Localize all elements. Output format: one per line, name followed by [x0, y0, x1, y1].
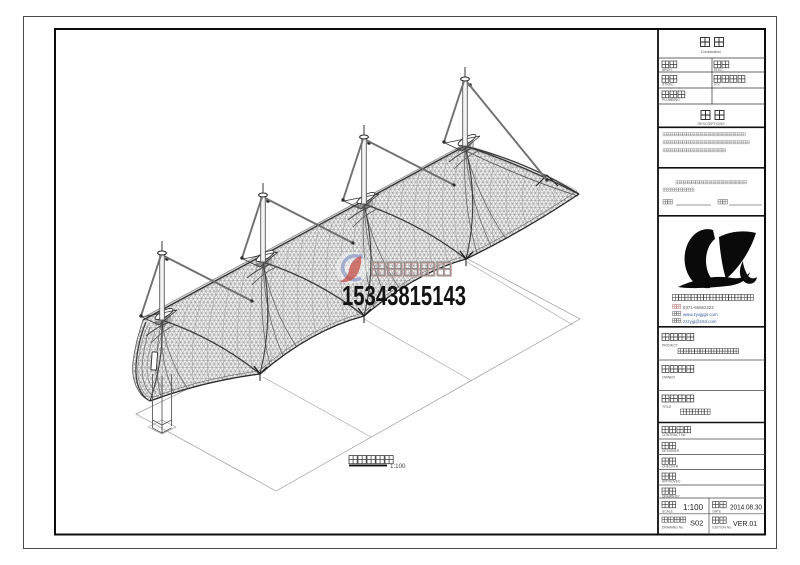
svg-text:PLUMBING: PLUMBING	[662, 98, 680, 102]
svg-text:CHECKER: CHECKER	[662, 465, 679, 469]
svg-text:ARCH.: ARCH.	[662, 68, 673, 72]
svg-text:0371-66562222: 0371-66562222	[683, 305, 714, 310]
svg-text:1:100: 1:100	[683, 503, 704, 512]
svg-text:1:100: 1:100	[390, 463, 406, 470]
svg-text:2014.08.30: 2014.08.30	[730, 505, 762, 512]
svg-text:S02: S02	[690, 519, 703, 528]
svg-text:TITLE: TITLE	[662, 405, 672, 409]
svg-text:SCALE: SCALE	[662, 510, 674, 514]
svg-text:STRUC.: STRUC.	[662, 83, 675, 87]
svg-text:CONTRACT No.: CONTRACT No.	[662, 433, 686, 437]
svg-text:zzzyjg@163.com: zzzyjg@163.com	[683, 319, 717, 324]
svg-text:www.zyxjggs.com: www.zyxjggs.com	[683, 312, 718, 317]
svg-text:H.V.: H.V.	[714, 83, 720, 87]
svg-text:DATE: DATE	[713, 510, 722, 514]
svg-text:15343815143: 15343815143	[342, 280, 466, 311]
svg-text:VER.01: VER.01	[733, 521, 757, 528]
svg-text:Combination: Combination	[701, 50, 721, 54]
svg-text:PROJECT: PROJECT	[662, 344, 678, 348]
svg-text:ELEC.: ELEC.	[714, 68, 724, 72]
svg-text:EDITION No.: EDITION No.	[713, 526, 733, 530]
svg-text:APPROVED: APPROVED	[662, 480, 681, 484]
svg-text:DRAWING No.: DRAWING No.	[662, 526, 684, 530]
svg-text:OWNER: OWNER	[662, 376, 676, 380]
svg-text:DESCRIPTIONS: DESCRIPTIONS	[698, 122, 726, 126]
svg-text:DESIGNER: DESIGNER	[662, 449, 680, 453]
